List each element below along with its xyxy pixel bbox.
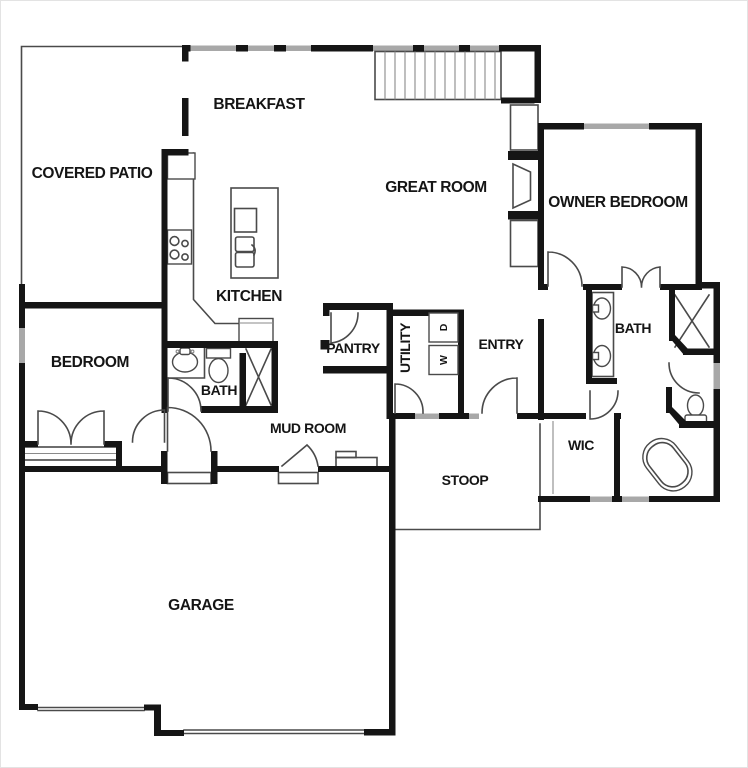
owner-toilet-icon xyxy=(685,395,707,423)
room-label-kitchen: KITCHEN xyxy=(216,288,282,305)
hall-bath-toilet-icon xyxy=(207,349,231,383)
owner-bath-window xyxy=(714,363,721,389)
walls xyxy=(19,45,720,736)
room-label-great-room: GREAT ROOM xyxy=(385,179,487,196)
island-sink-icon xyxy=(236,237,256,267)
utility-door xyxy=(395,384,423,413)
room-label-utility: UTILITY xyxy=(397,322,413,373)
mud-bench-icon xyxy=(336,452,377,469)
owner-tub-icon xyxy=(636,431,700,498)
room-label-hall-bath: BATH xyxy=(201,382,238,398)
room-label-owner-bedroom: OWNER BEDROOM xyxy=(548,194,687,211)
fireplace-icon xyxy=(511,105,539,267)
room-label-bedroom: BEDROOM xyxy=(51,354,129,371)
owner-vanity-icon xyxy=(592,293,614,377)
room-label-garage: GARAGE xyxy=(168,597,234,614)
hall-bath-sink-icon xyxy=(168,348,205,379)
cooktop-icon xyxy=(168,230,192,264)
stairs-icon xyxy=(375,52,501,100)
floor-plan-page: COVERED PATIO BREAKFAST GREAT ROOM OWNER… xyxy=(0,0,748,768)
owner-bedroom-window xyxy=(584,124,649,130)
wic-door xyxy=(590,391,618,419)
room-label-covered-patio: COVERED PATIO xyxy=(32,165,153,182)
bedroom-window xyxy=(19,328,25,363)
french-doors-icon xyxy=(38,411,104,444)
owner-shower-icon xyxy=(675,295,709,347)
door-sills xyxy=(24,447,318,484)
owner-bath-double-doors xyxy=(622,267,660,287)
garage-mudroom-door xyxy=(282,445,318,466)
bedroom-door xyxy=(133,410,165,442)
room-label-entry: ENTRY xyxy=(479,336,525,352)
hall-bath-shower-icon xyxy=(246,349,271,405)
room-label-stoop: STOOP xyxy=(442,472,489,488)
garage-door-lines xyxy=(38,708,364,734)
refrigerator-icon xyxy=(168,153,196,179)
garage-hall-door xyxy=(168,408,212,452)
room-label-pantry: PANTRY xyxy=(326,340,381,356)
washer-label: W xyxy=(438,355,450,365)
dryer-label: D xyxy=(438,323,450,331)
owner-bedroom-door xyxy=(548,252,582,286)
room-label-wic: WIC xyxy=(568,437,594,453)
range-icon xyxy=(239,319,273,344)
washer-dryer: D W xyxy=(429,313,458,375)
kitchen-island-icon xyxy=(231,188,278,278)
room-label-breakfast: BREAKFAST xyxy=(213,96,305,113)
room-label-owner-bath: BATH xyxy=(615,320,652,336)
water-closet-door xyxy=(669,363,699,393)
fixtures xyxy=(22,47,710,734)
hall-bath-door xyxy=(168,378,201,411)
room-label-mud-room: MUD ROOM xyxy=(270,420,346,436)
pantry-door xyxy=(331,313,358,343)
front-door xyxy=(482,378,517,413)
floor-plan-svg: COVERED PATIO BREAKFAST GREAT ROOM OWNER… xyxy=(1,1,748,768)
